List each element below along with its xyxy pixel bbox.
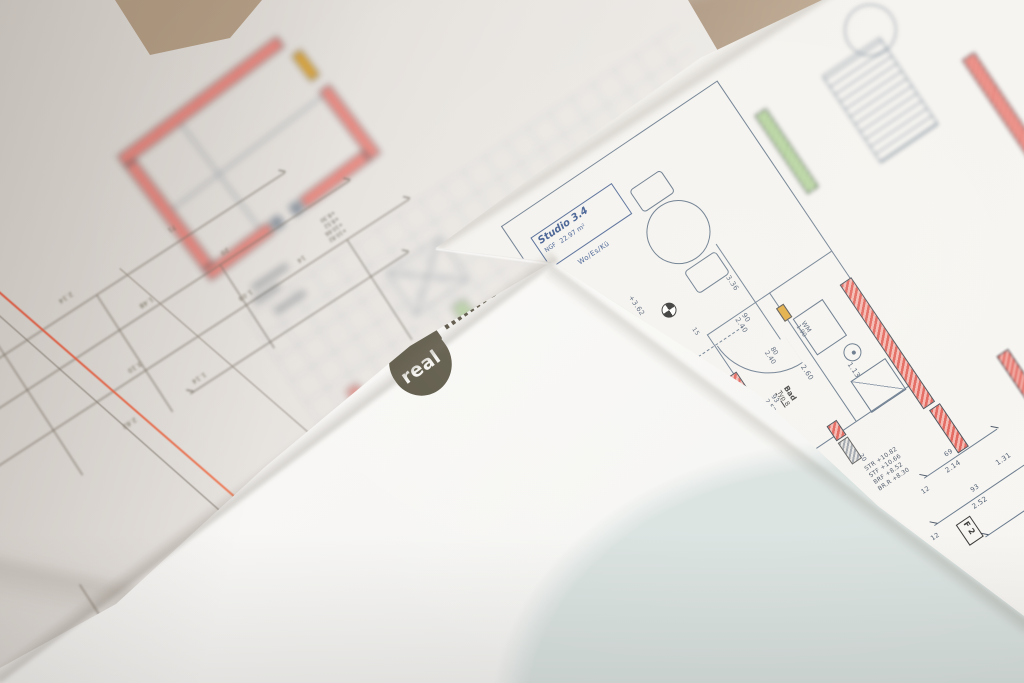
wall-line	[716, 80, 851, 280]
dimension-label: 93	[969, 482, 981, 494]
wall-hatched	[838, 436, 862, 464]
wall-red	[996, 349, 1024, 431]
dimension-label: 2.14	[57, 290, 75, 305]
photo-architectural-plans: 2.14 71 1.48 20 3.10 1.04 14 2.62 1.14 1…	[0, 0, 1024, 683]
dimension-label: 1.31	[994, 451, 1012, 467]
dimension-label: 2.62	[121, 416, 139, 431]
axis-label-box: F 2	[956, 516, 984, 546]
axis-label: F 2	[962, 520, 977, 536]
dimension-label: 20	[857, 452, 867, 463]
window-sill	[292, 49, 320, 81]
text-smudge	[252, 264, 288, 290]
wall-red	[962, 52, 1024, 201]
dimension-label: 15	[690, 326, 700, 337]
wall-red	[117, 36, 285, 167]
dimension-label: 12	[919, 484, 931, 496]
round-fixture	[834, 0, 906, 66]
dimension-label: 12	[929, 531, 941, 543]
stairs	[822, 37, 939, 163]
wall-red	[929, 403, 969, 453]
window-sill	[776, 304, 792, 322]
dimension-line	[985, 464, 1024, 538]
survey-marker	[659, 300, 680, 321]
dimension-label: 2.60	[799, 363, 815, 381]
drain-circle	[840, 340, 865, 365]
elevation-levels: STR +10.82 STF +10.66 BRF +8.52 BR.R +8.…	[863, 446, 912, 494]
drain-dot	[851, 350, 857, 356]
